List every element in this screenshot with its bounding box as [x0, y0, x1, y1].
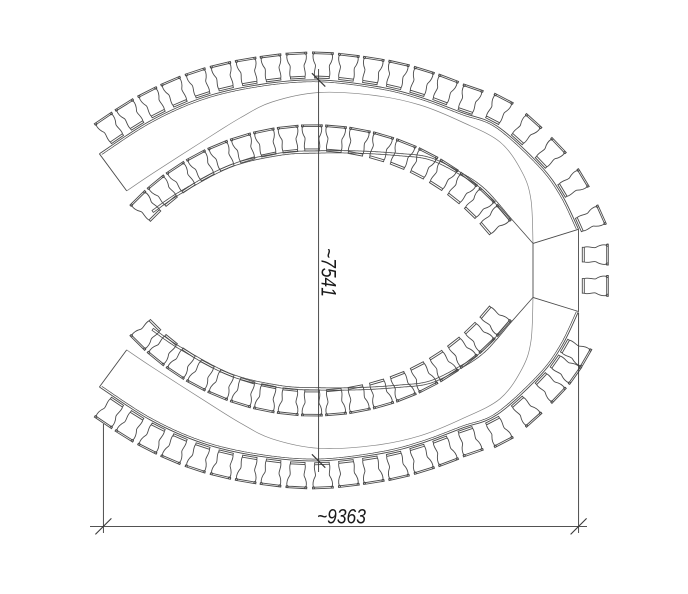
- svg-text:~9363: ~9363: [317, 506, 366, 529]
- svg-text:~7541: ~7541: [316, 248, 339, 297]
